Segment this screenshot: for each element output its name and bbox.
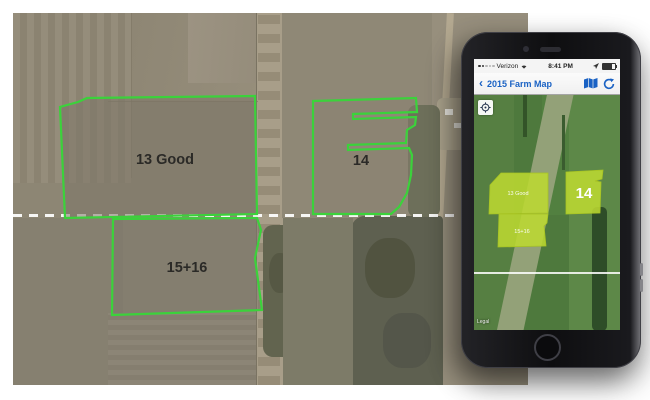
battery-icon <box>602 63 616 70</box>
wifi-icon <box>520 63 528 69</box>
clock-label: 8:41 PM <box>530 63 591 70</box>
signal-strength-icon <box>478 65 495 68</box>
status-bar: Verizon 8:41 PM <box>474 59 620 73</box>
legal-label[interactable]: Legal <box>477 319 489 325</box>
phone-screen: Verizon 8:41 PM ‹ 2015 Farm Map <box>474 59 620 330</box>
phone-field-label-14: 14 <box>576 185 593 202</box>
iphone-mockup: Verizon 8:41 PM ‹ 2015 Farm Map <box>461 32 641 368</box>
phone-field-label-15-16: 15+16 <box>514 229 529 235</box>
map-layers-button[interactable] <box>584 78 598 89</box>
power-button <box>640 263 643 276</box>
compass-icon <box>480 102 491 113</box>
phone-field-overlay: 13 Good 15+16 14 <box>474 95 620 330</box>
field-label-13: 13 Good <box>136 152 194 168</box>
page-title: 2015 Farm Map <box>487 79 580 89</box>
home-button[interactable] <box>534 334 561 361</box>
phone-farm-map[interactable]: 13 Good 15+16 14 Legal <box>474 95 620 330</box>
front-camera-icon <box>523 46 529 52</box>
back-button[interactable]: ‹ <box>479 77 483 89</box>
location-button[interactable] <box>478 100 493 115</box>
marketing-composite: 13 Good 14 15+16 Verizon 8:41 PM <box>0 0 650 400</box>
field-boundary-overlay: 13 Good 14 15+16 <box>13 13 528 385</box>
app-nav-bar: ‹ 2015 Farm Map <box>474 73 620 95</box>
field-label-14: 14 <box>353 153 369 169</box>
carrier-label: Verizon <box>497 63 519 70</box>
phone-field-label-13: 13 Good <box>507 191 528 197</box>
earpiece-speaker <box>540 47 561 52</box>
side-button <box>640 279 643 292</box>
satellite-map[interactable]: 13 Good 14 15+16 <box>13 13 528 385</box>
location-arrow-icon <box>593 63 599 69</box>
field-label-15-16: 15+16 <box>167 260 208 276</box>
sync-button[interactable] <box>603 78 615 90</box>
